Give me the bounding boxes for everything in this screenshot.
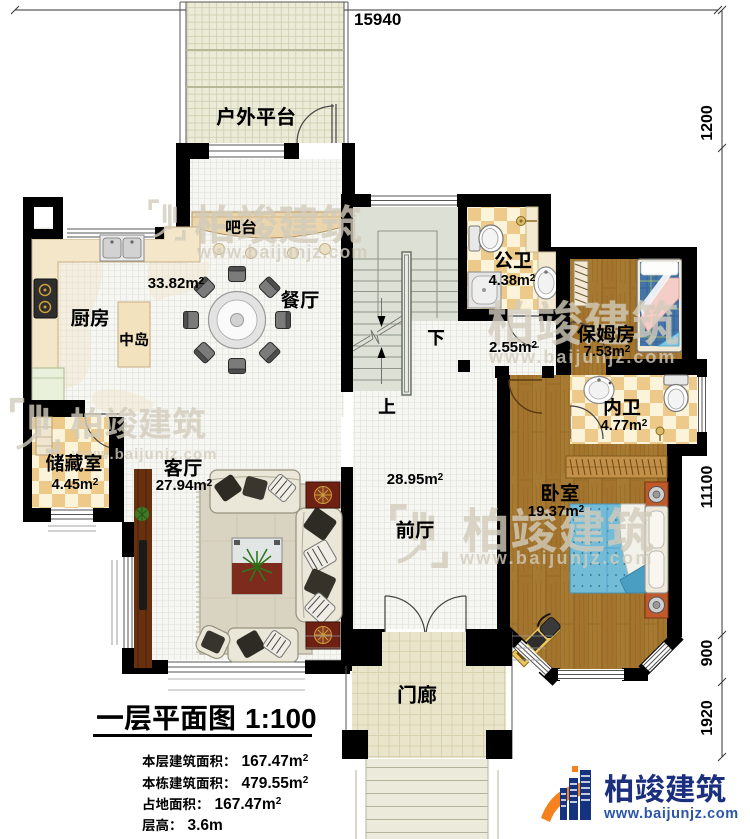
svg-text:1200: 1200 <box>699 105 716 141</box>
svg-text:900: 900 <box>699 640 716 667</box>
svg-text:28.95m2: 28.95m2 <box>387 471 444 488</box>
svg-text:33.82m2: 33.82m2 <box>148 275 205 292</box>
svg-text:11100: 11100 <box>699 466 716 509</box>
svg-text:479.55m2: 479.55m2 <box>242 775 309 792</box>
svg-text:19.37m2: 19.37m2 <box>528 503 585 520</box>
svg-text:1:100: 1:100 <box>245 703 317 734</box>
svg-text:2.55m2: 2.55m2 <box>489 339 538 356</box>
svg-text:4.77m2: 4.77m2 <box>601 418 648 434</box>
svg-text:www.baijunjz.com: www.baijunjz.com <box>603 806 739 822</box>
svg-text:15940: 15940 <box>354 10 401 29</box>
svg-text:4.38m2: 4.38m2 <box>489 273 536 289</box>
svg-text:7.53m2: 7.53m2 <box>584 344 631 360</box>
svg-text:167.47m2: 167.47m2 <box>242 753 309 770</box>
svg-text:3.6m: 3.6m <box>188 817 223 834</box>
svg-text:www.baijunjz.com: www.baijunjz.com <box>459 548 654 568</box>
svg-text:27.94m2: 27.94m2 <box>156 477 213 494</box>
svg-text:167.47m2: 167.47m2 <box>215 796 282 813</box>
svg-text:www.baijunjz.com: www.baijunjz.com <box>196 242 368 262</box>
svg-text:4.45m2: 4.45m2 <box>52 477 99 493</box>
svg-text:1920: 1920 <box>699 700 716 736</box>
